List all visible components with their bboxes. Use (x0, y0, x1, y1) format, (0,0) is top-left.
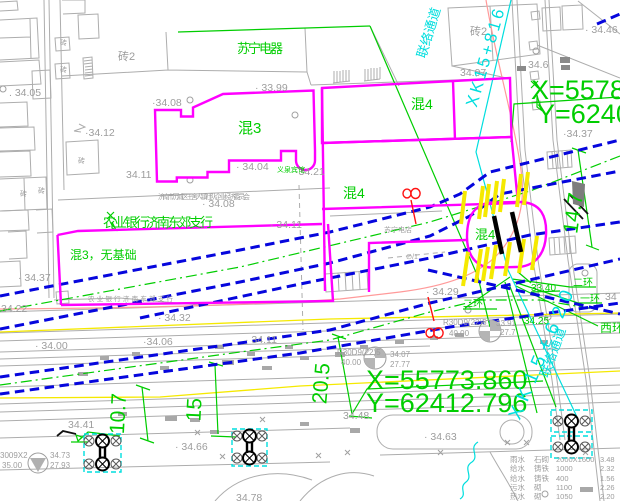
svg-text:·34.08: ·34.08 (152, 97, 182, 109)
svg-text:·34.37: ·34.37 (563, 128, 593, 140)
svg-text:混3: 混3 (238, 120, 261, 137)
svg-text:1100: 1100 (556, 483, 572, 492)
svg-text:砖: 砖 (60, 65, 67, 74)
svg-text:35.00: 35.00 (2, 461, 23, 470)
svg-text:400: 400 (556, 474, 569, 483)
svg-text:Y=62408: Y=62408 (537, 99, 620, 129)
svg-text:R30D9(22)5: R30D9(22)5 (443, 318, 487, 327)
svg-text:. 34.05: . 34.05 (9, 87, 41, 99)
svg-text:3009X2: 3009X2 (0, 451, 28, 460)
svg-text:34.11: 34.11 (126, 169, 152, 181)
svg-text:石砌: 石砌 (534, 455, 549, 464)
svg-text:· 34.04: · 34.04 (236, 161, 269, 173)
svg-text:34.22: 34.22 (1, 303, 27, 315)
svg-text:农业银行济南东郊支行: 农业银行济南东郊支行 (88, 294, 174, 303)
svg-text:20.5: 20.5 (308, 362, 334, 405)
svg-text:一环: 一环 (580, 294, 600, 305)
svg-text:· 34.37: · 34.37 (18, 272, 51, 284)
svg-text:3.48: 3.48 (600, 455, 615, 464)
svg-text:2.26: 2.26 (600, 483, 615, 492)
svg-text:· 33.99: · 33.99 (255, 82, 288, 94)
svg-text:混4: 混4 (343, 185, 365, 201)
svg-text:1050: 1050 (556, 492, 573, 501)
svg-text:雨水: 雨水 (510, 454, 525, 464)
svg-text:1.56: 1.56 (600, 474, 615, 483)
svg-text:农业银行济南东郊支行: 农业银行济南东郊支行 (103, 215, 213, 230)
svg-text:义泉宾馆: 义泉宾馆 (277, 165, 305, 174)
svg-text:砖: 砖 (78, 156, 85, 165)
svg-text:33.91: 33.91 (496, 319, 517, 328)
svg-text:给水: 给水 (510, 473, 525, 483)
svg-text:34: 34 (605, 291, 617, 303)
svg-text:2.32: 2.32 (600, 464, 615, 473)
svg-text:· 34.11: · 34.11 (270, 219, 302, 231)
svg-text:砖2: 砖2 (118, 49, 135, 63)
svg-text:Y=62412.796: Y=62412.796 (366, 388, 527, 418)
svg-text:苏宁电器: 苏宁电器 (237, 41, 283, 56)
svg-text:· 34.46: · 34.46 (585, 24, 618, 36)
svg-text:· 34.00: · 34.00 (35, 340, 68, 352)
svg-text:砌: 砌 (534, 483, 542, 492)
svg-text:· 34.66: · 34.66 (175, 441, 208, 453)
svg-text:铸铁: 铸铁 (534, 473, 549, 483)
svg-text:砖: 砖 (38, 186, 45, 195)
svg-text:33.40: 33.40 (531, 283, 556, 294)
svg-text:·34.12: ·34.12 (85, 127, 115, 139)
svg-text:混4: 混4 (411, 96, 433, 112)
svg-text:热水: 热水 (510, 491, 525, 501)
svg-text:R30D9(22)5: R30D9(22)5 (337, 348, 381, 357)
svg-text:∅/1: ∅/1 (406, 254, 418, 261)
svg-text:34.07: 34.07 (390, 350, 411, 359)
svg-text:· 34.32: · 34.32 (158, 312, 191, 324)
svg-text:砖: 砖 (60, 38, 67, 47)
svg-text:34.6: 34.6 (528, 59, 549, 71)
svg-text:给水: 给水 (510, 463, 525, 473)
svg-text:污水: 污水 (510, 482, 525, 492)
svg-text:· 34.11: · 34.11 (245, 334, 277, 346)
svg-text:砖: 砖 (20, 189, 27, 198)
svg-text:27.93: 27.93 (50, 461, 71, 470)
svg-text:混3，无基础: 混3，无基础 (70, 248, 137, 262)
svg-text:苏宁电店: 苏宁电店 (384, 225, 412, 234)
svg-text:铸铁: 铸铁 (534, 463, 549, 473)
svg-text:混4: 混4 (475, 227, 495, 242)
svg-text:西环: 西环 (600, 321, 620, 335)
svg-text:40.00: 40.00 (449, 329, 470, 338)
svg-text:27.7: 27.7 (500, 328, 516, 337)
svg-text:10.7: 10.7 (106, 393, 131, 435)
svg-text:· 34.29: · 34.29 (426, 286, 459, 298)
svg-text:2.20: 2.20 (600, 492, 615, 501)
svg-text:二环: 二环 (463, 299, 483, 310)
svg-text:34.78: 34.78 (236, 492, 262, 501)
svg-text:34.73: 34.73 (50, 451, 71, 460)
svg-text:砌: 砌 (534, 492, 542, 501)
svg-text:2000X1600: 2000X1600 (556, 455, 594, 464)
svg-text:· 34.63: · 34.63 (424, 431, 457, 443)
svg-text:济南市历城区王舍人镇社队企业经济委员会: 济南市历城区王舍人镇社队企业经济委员会 (158, 192, 250, 201)
svg-text:40.00: 40.00 (341, 358, 362, 367)
svg-text:15: 15 (182, 397, 206, 422)
svg-text:1000: 1000 (556, 464, 573, 473)
svg-text:34.41: 34.41 (68, 419, 94, 431)
svg-text:·34.06: ·34.06 (143, 336, 173, 348)
